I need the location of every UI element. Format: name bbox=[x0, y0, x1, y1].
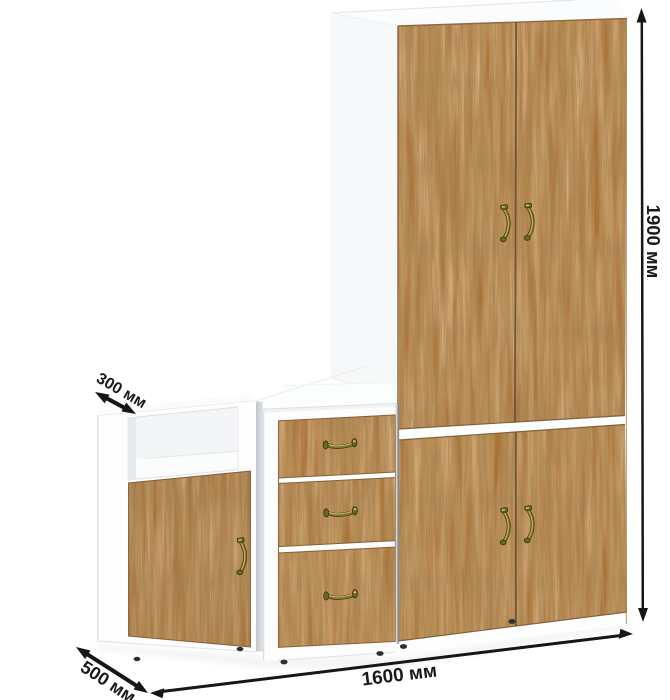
svg-text:1900 мм: 1900 мм bbox=[643, 205, 664, 279]
